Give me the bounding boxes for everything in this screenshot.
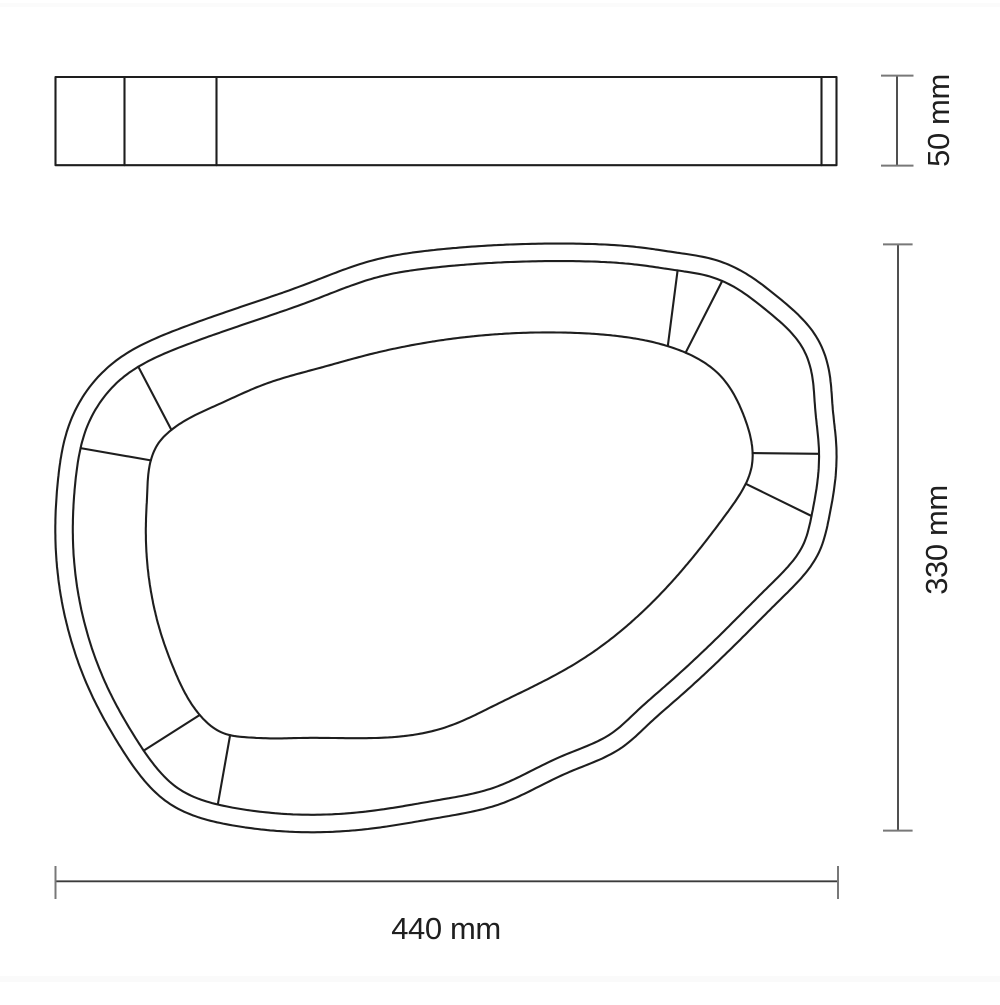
svg-text:50 mm: 50 mm: [921, 74, 956, 167]
svg-text:330 mm: 330 mm: [919, 485, 954, 595]
svg-text:440 mm: 440 mm: [391, 911, 501, 946]
